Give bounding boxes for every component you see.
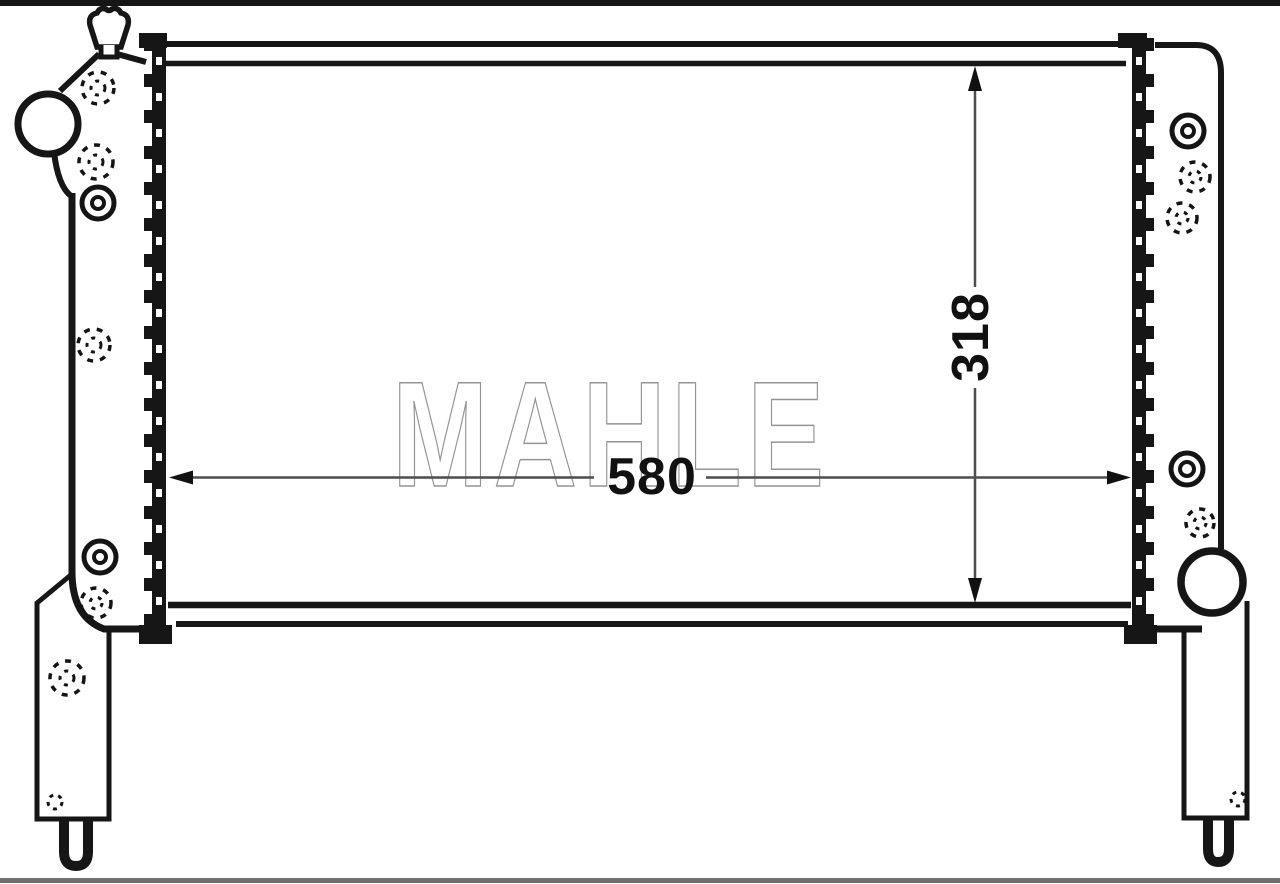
left-tank: [18, 9, 162, 631]
crimp-seams: [139, 33, 1157, 644]
filler-neck: [101, 45, 117, 57]
right-crimp-seam: [1132, 36, 1154, 640]
radiator-technical-drawing: MAHLE: [0, 0, 1280, 884]
arrow-right-icon: [1107, 471, 1131, 485]
arrow-left-icon: [169, 471, 193, 485]
radiator-line-art: [0, 0, 1280, 884]
outlet-port: [1181, 551, 1243, 613]
right-tank: [1155, 42, 1247, 862]
left-crimp-seam: [144, 36, 166, 640]
arrow-down-icon: [968, 578, 982, 603]
left-mounting-pin: [64, 819, 88, 866]
dimension-height-label: 318: [942, 275, 1000, 399]
right-bracket: [1184, 601, 1247, 862]
right-mounting-pin: [1208, 818, 1229, 862]
dimension-width-label: 580: [590, 448, 714, 506]
inlet-port: [18, 94, 78, 154]
filler-cap: [90, 9, 129, 48]
arrow-up-icon: [968, 66, 982, 91]
